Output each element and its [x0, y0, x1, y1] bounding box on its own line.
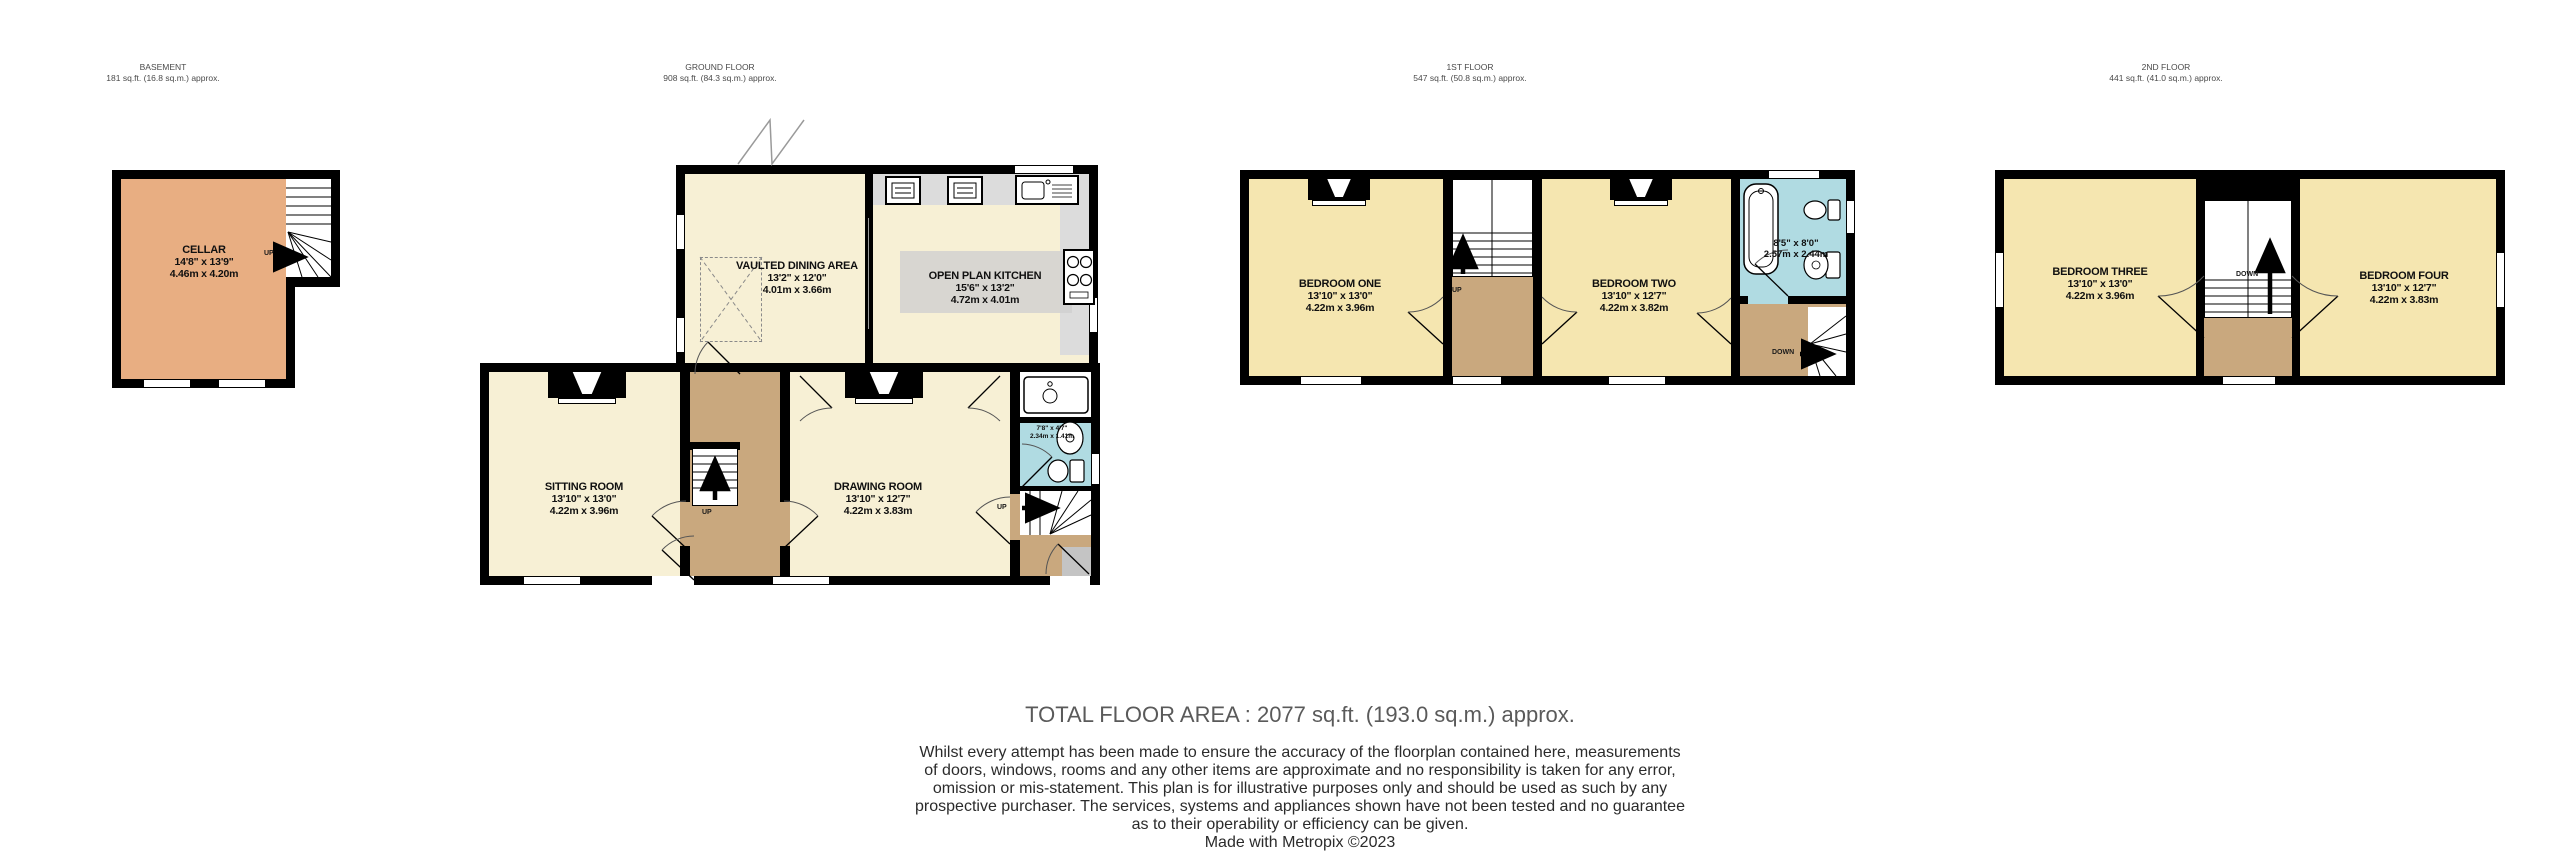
drawing-room-label: DRAWING ROOM 13'10" x 12'7" 4.22m x 3.83…	[788, 481, 968, 517]
room-imperial: 13'2" x 12'0"	[707, 272, 887, 284]
room-metric: 4.01m x 3.66m	[707, 284, 887, 296]
room-name: VAULTED DINING AREA	[707, 260, 887, 272]
bathroom-label: 8'5" x 8'0" 2.57m x 2.44m	[1726, 238, 1866, 260]
room-name: BEDROOM THREE	[2010, 266, 2190, 278]
room-imperial: 8'5" x 8'0"	[1726, 238, 1866, 249]
sitting-room-label: SITTING ROOM 13'10" x 13'0" 4.22m x 3.96…	[494, 481, 674, 517]
vaulted-break-icon	[738, 120, 804, 164]
stairs-up-label: UP	[1452, 287, 1462, 294]
room-imperial: 13'10" x 12'7"	[788, 493, 968, 505]
room-name: BEDROOM FOUR	[2314, 270, 2494, 282]
room-metric: 2.57m x 2.44m	[1726, 249, 1866, 260]
stairs-down-label: DOWN	[2236, 271, 2258, 278]
toilet-icon	[1048, 460, 1084, 482]
kitchen-label: OPEN PLAN KITCHEN 15'6" x 13'2" 4.72m x …	[895, 270, 1075, 306]
sink-icon	[1016, 176, 1078, 204]
room-metric: 4.72m x 4.01m	[895, 294, 1075, 306]
disclaimer-line: as to their operability or efficiency ca…	[850, 816, 1750, 834]
toilet-icon	[1804, 200, 1840, 220]
first-floor-winder-treads	[1810, 316, 1846, 376]
made-with-credit: Made with Metropix ©2023	[850, 834, 1750, 852]
room-imperial: 13'10" x 12'7"	[1544, 290, 1724, 302]
room-metric: 4.22m x 3.83m	[2314, 294, 2494, 306]
basin-icon	[1024, 377, 1088, 413]
room-name: OPEN PLAN KITCHEN	[895, 270, 1075, 282]
dining-label: VAULTED DINING AREA 13'2" x 12'0" 4.01m …	[707, 260, 887, 296]
second-floor-stairs-treads	[2204, 200, 2292, 318]
room-imperial: 13'10" x 13'0"	[1250, 290, 1430, 302]
stairs-up-label: UP	[702, 509, 712, 516]
room-name: SITTING ROOM	[494, 481, 674, 493]
floorplan-canvas: BASEMENT 181 sq.ft. (16.8 sq.m.) approx.…	[0, 0, 2560, 856]
total-floor-area: TOTAL FLOOR AREA : 2077 sq.ft. (193.0 sq…	[800, 702, 1800, 728]
disclaimer: Whilst every attempt has been made to en…	[850, 744, 1750, 852]
stairs-down-label: DOWN	[1772, 349, 1794, 356]
disclaimer-line: prospective purchaser. The services, sys…	[850, 798, 1750, 816]
bedroom-four-label: BEDROOM FOUR 13'10" x 12'7" 4.22m x 3.83…	[2314, 270, 2494, 306]
room-imperial: 7'8" x 4'7"	[1012, 425, 1092, 433]
door-icon	[652, 342, 1089, 580]
shower-room-label: 7'8" x 4'7" 2.34m x 1.41m	[1012, 425, 1092, 440]
room-name: BEDROOM TWO	[1544, 278, 1724, 290]
room-imperial: 13'10" x 12'7"	[2314, 282, 2494, 294]
room-name: DRAWING ROOM	[788, 481, 968, 493]
bedroom-three-label: BEDROOM THREE 13'10" x 13'0" 4.22m x 3.9…	[2010, 266, 2190, 302]
disclaimer-line: of doors, windows, rooms and any other i…	[850, 762, 1750, 780]
bedroom-one-label: BEDROOM ONE 13'10" x 13'0" 4.22m x 3.96m	[1250, 278, 1430, 314]
disclaimer-line: Whilst every attempt has been made to en…	[850, 744, 1750, 762]
winder-stairs-treads	[1030, 491, 1091, 535]
room-imperial: 13'10" x 13'0"	[494, 493, 674, 505]
room-metric: 4.22m x 3.96m	[1250, 302, 1430, 314]
room-imperial: 15'6" x 13'2"	[895, 282, 1075, 294]
bath-icon	[1744, 184, 1778, 274]
room-name: BEDROOM ONE	[1250, 278, 1430, 290]
room-imperial: 14'8" x 13'9"	[114, 256, 294, 268]
oven-icon	[886, 177, 920, 204]
room-metric: 4.46m x 4.20m	[114, 268, 294, 280]
oven-icon	[948, 177, 982, 204]
room-metric: 4.22m x 3.96m	[2010, 290, 2190, 302]
room-imperial: 13'10" x 13'0"	[2010, 278, 2190, 290]
room-metric: 2.34m x 1.41m	[1012, 433, 1092, 441]
room-metric: 4.22m x 3.82m	[1544, 302, 1724, 314]
room-metric: 4.22m x 3.96m	[494, 505, 674, 517]
stairs-up-label: UP	[264, 250, 274, 257]
bedroom-two-label: BEDROOM TWO 13'10" x 12'7" 4.22m x 3.82m	[1544, 278, 1724, 314]
stairs-up-label: UP	[997, 504, 1007, 511]
disclaimer-line: omission or mis-statement. This plan is …	[850, 780, 1750, 798]
room-metric: 4.22m x 3.83m	[788, 505, 968, 517]
